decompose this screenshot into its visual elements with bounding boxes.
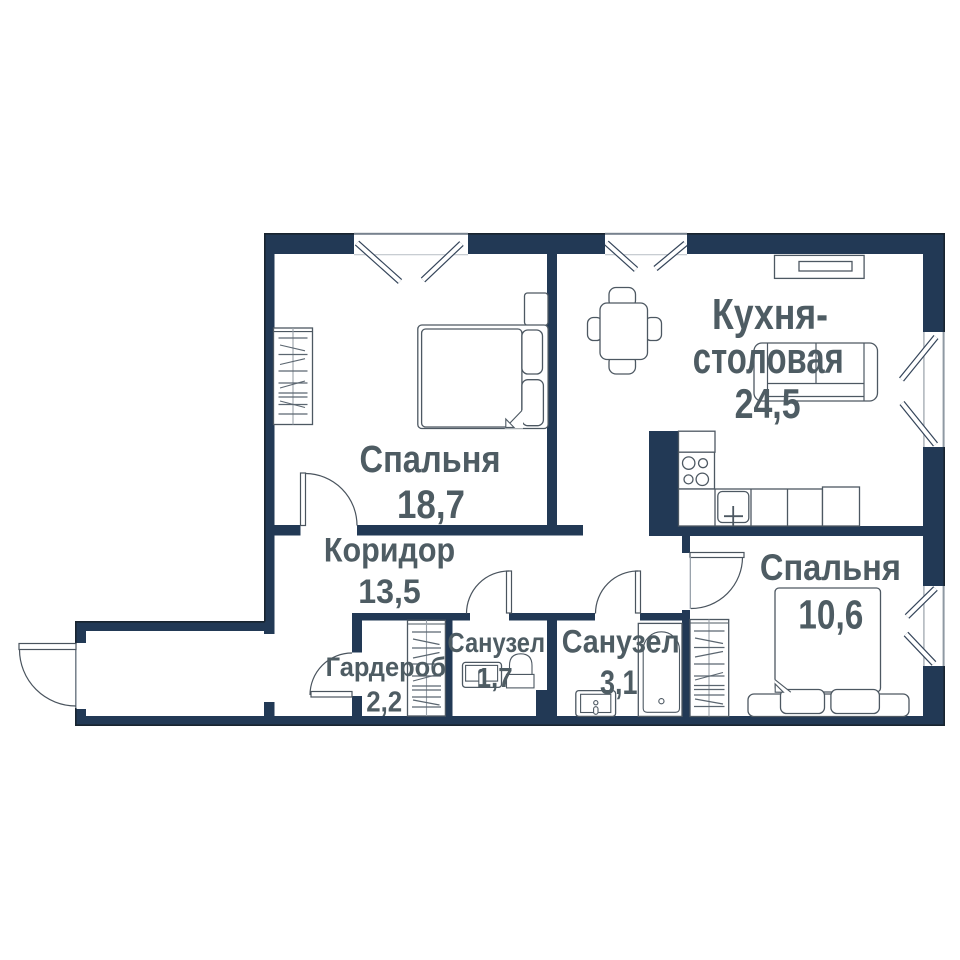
svg-text:Спальня: Спальня — [760, 546, 901, 588]
svg-text:24,5: 24,5 — [735, 380, 801, 427]
svg-text:18,7: 18,7 — [397, 483, 465, 527]
svg-text:Кухня-: Кухня- — [712, 290, 828, 339]
svg-text:Санузел: Санузел — [562, 623, 680, 659]
svg-text:Гардероб: Гардероб — [326, 652, 446, 682]
svg-text:2,2: 2,2 — [366, 686, 402, 718]
svg-text:Санузел: Санузел — [448, 627, 546, 658]
svg-text:Коридор: Коридор — [324, 532, 455, 570]
svg-text:13,5: 13,5 — [358, 573, 421, 611]
svg-text:1,7: 1,7 — [477, 662, 513, 693]
svg-text:10,6: 10,6 — [798, 592, 863, 638]
svg-text:столовая: столовая — [693, 334, 844, 383]
svg-text:Спальня: Спальня — [360, 439, 501, 481]
svg-text:3,1: 3,1 — [600, 664, 638, 702]
